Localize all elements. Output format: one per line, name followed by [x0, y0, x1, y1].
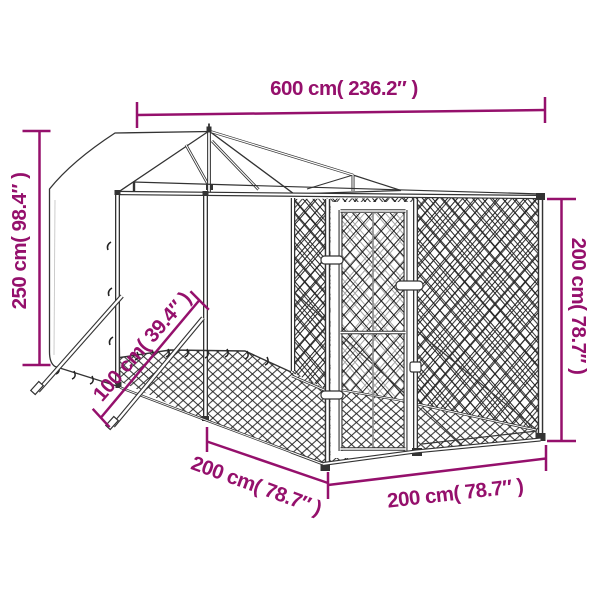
svg-text:200 cm( 78.7″ ): 200 cm( 78.7″ ): [567, 238, 590, 375]
svg-text:600 cm( 236.2″ ): 600 cm( 236.2″ ): [270, 77, 418, 100]
svg-text:250 cm( 98.4″ ): 250 cm( 98.4″ ): [8, 173, 31, 310]
